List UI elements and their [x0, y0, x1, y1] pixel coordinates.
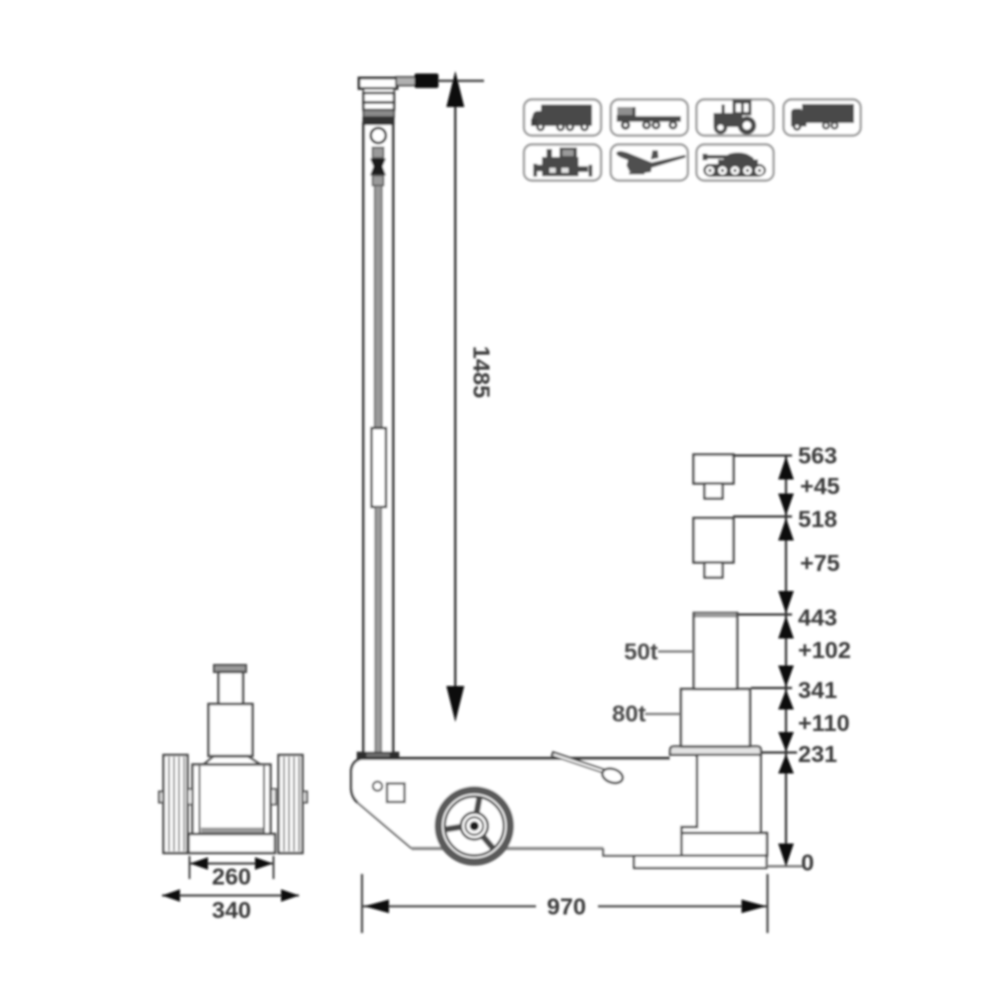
svg-text:+102: +102	[798, 637, 851, 663]
svg-text:80t: 80t	[612, 701, 646, 727]
svg-text:518: 518	[798, 506, 837, 532]
svg-text:231: 231	[798, 741, 837, 767]
svg-text:+75: +75	[800, 550, 840, 576]
svg-text:340: 340	[212, 897, 251, 923]
svg-text:0: 0	[801, 850, 814, 876]
svg-text:1485: 1485	[468, 346, 494, 398]
svg-text:50t: 50t	[624, 639, 658, 665]
svg-text:+45: +45	[800, 473, 840, 499]
svg-text:970: 970	[547, 894, 586, 920]
svg-text:443: 443	[798, 605, 837, 631]
svg-text:341: 341	[798, 677, 837, 703]
svg-text:+110: +110	[798, 710, 850, 736]
svg-text:563: 563	[798, 443, 837, 469]
svg-text:260: 260	[212, 864, 251, 890]
